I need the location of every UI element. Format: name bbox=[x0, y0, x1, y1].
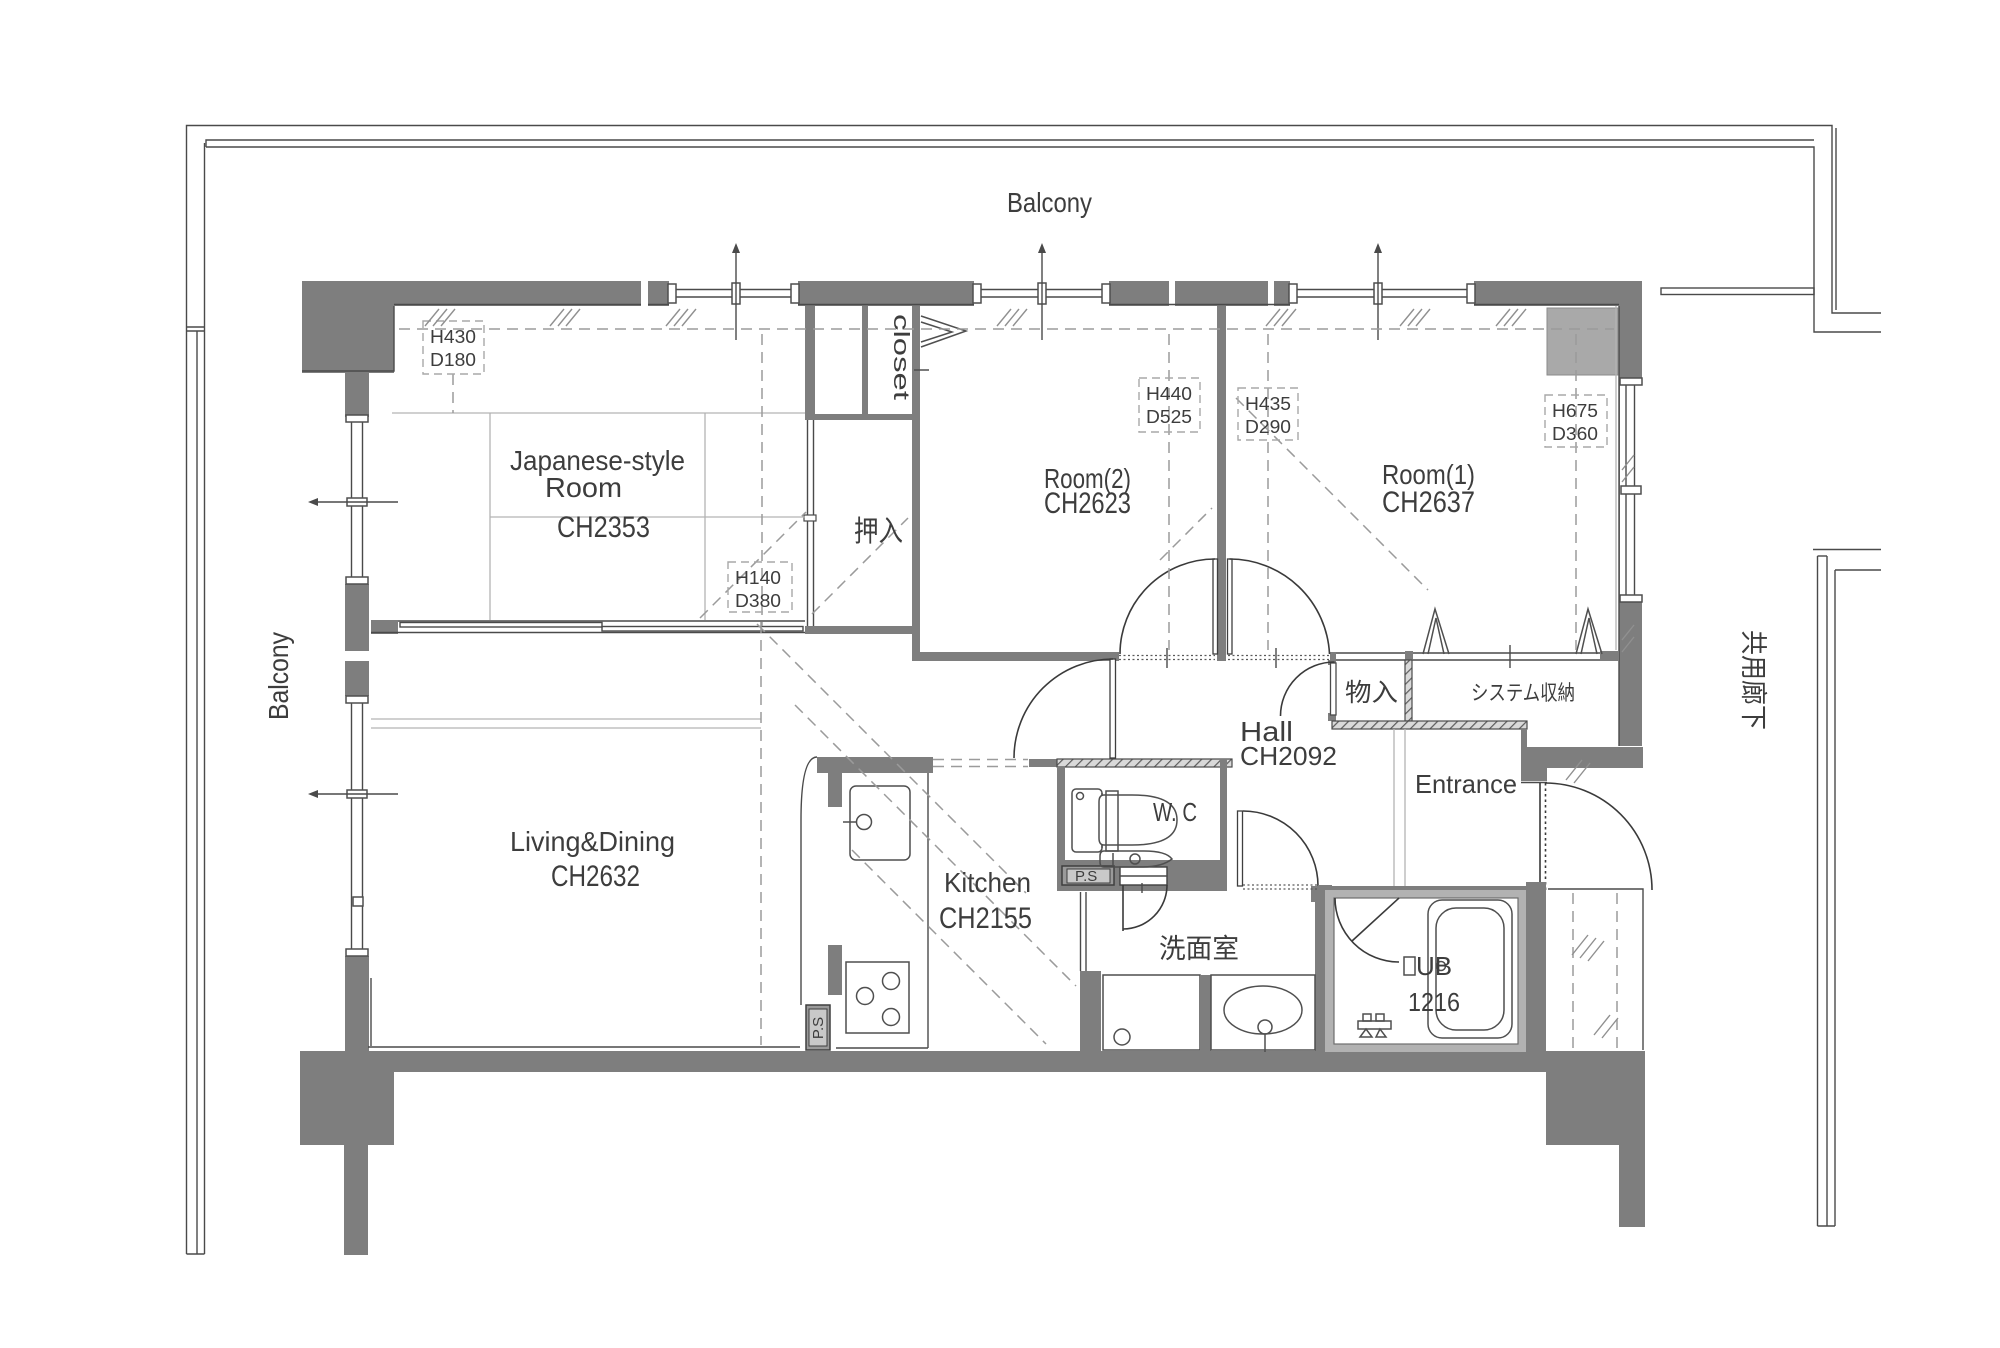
svg-text:D290: D290 bbox=[1245, 417, 1291, 437]
svg-text:CH2353: CH2353 bbox=[557, 511, 650, 544]
svg-text:共用廊下: 共用廊下 bbox=[1738, 630, 1768, 730]
svg-text:UB: UB bbox=[1416, 951, 1452, 981]
svg-text:システム収納: システム収納 bbox=[1471, 682, 1575, 705]
svg-text:CH2623: CH2623 bbox=[1044, 487, 1131, 520]
svg-text:Room: Room bbox=[545, 472, 622, 503]
svg-text:CH2637: CH2637 bbox=[1382, 486, 1475, 519]
svg-text:P.S: P.S bbox=[810, 1017, 827, 1039]
svg-text:洗面室: 洗面室 bbox=[1159, 934, 1239, 964]
svg-text:H675: H675 bbox=[1552, 401, 1598, 421]
svg-text:H440: H440 bbox=[1146, 384, 1192, 404]
svg-text:1216: 1216 bbox=[1408, 987, 1460, 1017]
svg-text:D360: D360 bbox=[1552, 424, 1598, 444]
svg-text:物入: 物入 bbox=[1345, 679, 1398, 707]
svg-text:D380: D380 bbox=[735, 591, 781, 611]
svg-text:H430: H430 bbox=[430, 327, 476, 347]
svg-text:Balcony: Balcony bbox=[263, 632, 294, 720]
svg-text:D180: D180 bbox=[430, 350, 476, 370]
svg-text:H140: H140 bbox=[735, 568, 781, 588]
svg-text:Balcony: Balcony bbox=[1007, 187, 1092, 218]
svg-text:Entrance: Entrance bbox=[1415, 769, 1517, 799]
svg-text:H435: H435 bbox=[1245, 394, 1291, 414]
svg-text:CH2155: CH2155 bbox=[939, 902, 1032, 935]
svg-text:W. C: W. C bbox=[1153, 797, 1197, 827]
svg-text:CH2632: CH2632 bbox=[551, 860, 640, 893]
svg-text:CH2092: CH2092 bbox=[1240, 741, 1337, 771]
svg-text:P.S: P.S bbox=[1075, 868, 1097, 885]
svg-text:Kitchen: Kitchen bbox=[944, 867, 1031, 898]
svg-text:closet: closet bbox=[889, 314, 914, 400]
svg-text:押入: 押入 bbox=[854, 515, 903, 548]
svg-text:Living&Dining: Living&Dining bbox=[510, 826, 675, 857]
svg-text:D525: D525 bbox=[1146, 407, 1192, 427]
